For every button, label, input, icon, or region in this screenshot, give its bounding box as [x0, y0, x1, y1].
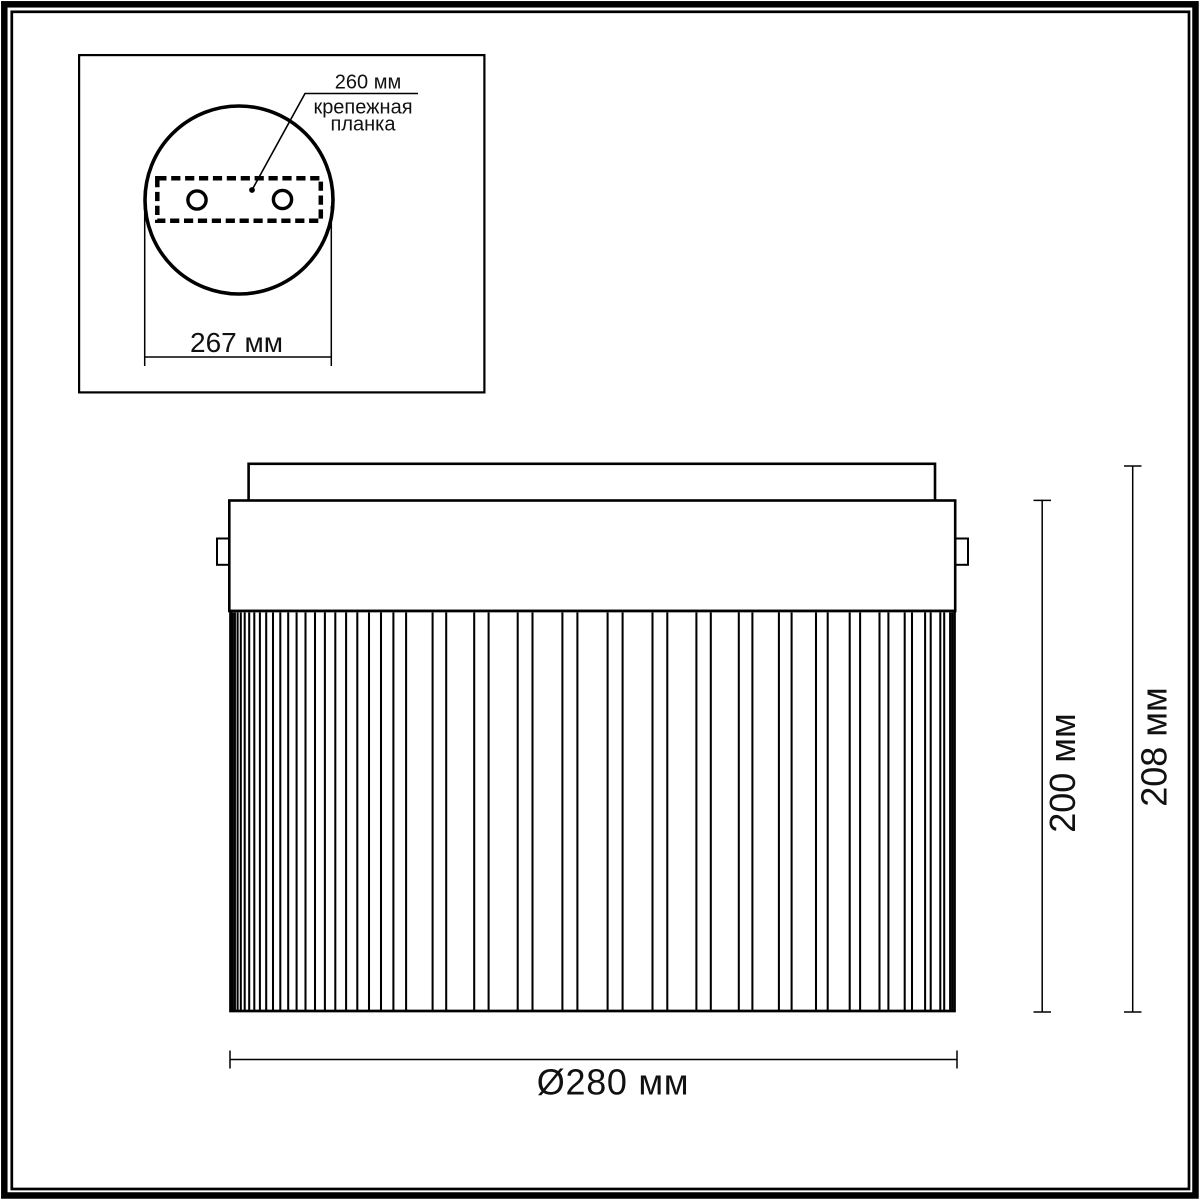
svg-text:Ø280 мм: Ø280 мм [537, 1062, 689, 1103]
svg-text:планка: планка [331, 114, 397, 136]
svg-text:208 мм: 208 мм [1134, 687, 1175, 807]
svg-text:267 мм: 267 мм [190, 327, 283, 358]
svg-text:200 мм: 200 мм [1042, 713, 1083, 833]
svg-text:260 мм: 260 мм [335, 72, 401, 94]
